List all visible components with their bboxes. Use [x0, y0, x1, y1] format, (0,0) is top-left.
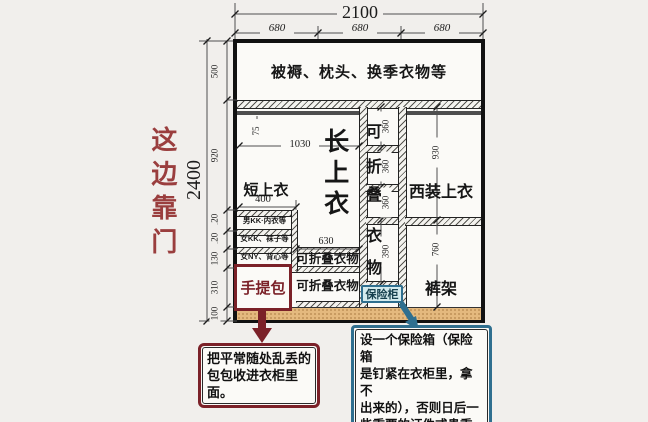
dim-col-3: 680 [425, 23, 459, 34]
label-mid-char-5: 物 [364, 260, 384, 278]
label-short-tops: 短上衣 [226, 182, 306, 199]
label-safe: 保险柜 [366, 286, 399, 302]
label-drawer-3: 女NY、背心等 [238, 253, 291, 262]
dim-total-height: 2400 [185, 158, 203, 202]
dim-col-2: 680 [343, 23, 377, 34]
handbag-box: 手提包 [234, 264, 292, 311]
hanging-rod-left [237, 111, 359, 115]
label-mid-char-4: 衣 [364, 228, 384, 246]
handbag-note-text: 把平常随处乱丢的 包包收进衣柜里面。 [202, 347, 316, 404]
hanging-rod-right [405, 111, 481, 115]
dim-left-920: 920 [210, 141, 221, 171]
handbag-note-box: 把平常随处乱丢的 包包收进衣柜里面。 [198, 343, 320, 408]
label-mid-char-1: 可 [364, 124, 384, 142]
label-long-tops: 长上衣 [320, 128, 349, 221]
label-fold-row-2: 可折叠衣物 [296, 279, 359, 293]
dim-hang-width: 1030 [281, 140, 319, 151]
dim-fold-width: 630 [310, 237, 342, 247]
label-mid-char-2: 折 [364, 159, 384, 177]
dim-rod-offset: 75 [251, 119, 261, 143]
dim-left-130: 130 [210, 244, 221, 274]
label-door-side: 这边靠门 [147, 126, 177, 262]
dim-left-500: 500 [210, 57, 221, 87]
mid-shelf-3 [366, 217, 398, 225]
safe-box: 保险柜 [361, 285, 403, 303]
label-top-shelf: 被褥、枕头、换季衣物等 [239, 64, 479, 81]
label-suit: 西装上衣 [402, 184, 480, 202]
dim-left-100: 100 [210, 299, 221, 329]
safe-note-box: 设一个保险箱（保险箱 是钉紧在衣柜里，拿不 出来的），否则日后一 些重要的证件或… [351, 325, 492, 422]
safe-note-text: 设一个保险箱（保险箱 是钉紧在衣柜里，拿不 出来的），否则日后一 些重要的证件或… [355, 329, 488, 422]
partition-mid-right [398, 107, 407, 307]
dim-total-width: 2100 [337, 4, 383, 20]
label-fold-row-1: 可折叠衣物 [296, 252, 359, 266]
wardrobe-design-diagram: 2100 680 680 680 2400 500 920 120 120 13… [0, 0, 648, 422]
dim-trouser-height: 760 [431, 235, 442, 265]
label-drawer-1: 男KK·内衣等 [238, 217, 291, 226]
dim-col-1: 680 [260, 23, 294, 34]
label-trousers: 裤架 [402, 281, 480, 299]
label-drawer-2: 女KK、袜子等 [238, 235, 291, 244]
label-handbag: 手提包 [240, 277, 285, 298]
right-shelf-board [405, 217, 481, 226]
label-mid-char-3: 叠 [364, 187, 384, 205]
dim-suit-height: 930 [431, 138, 442, 168]
